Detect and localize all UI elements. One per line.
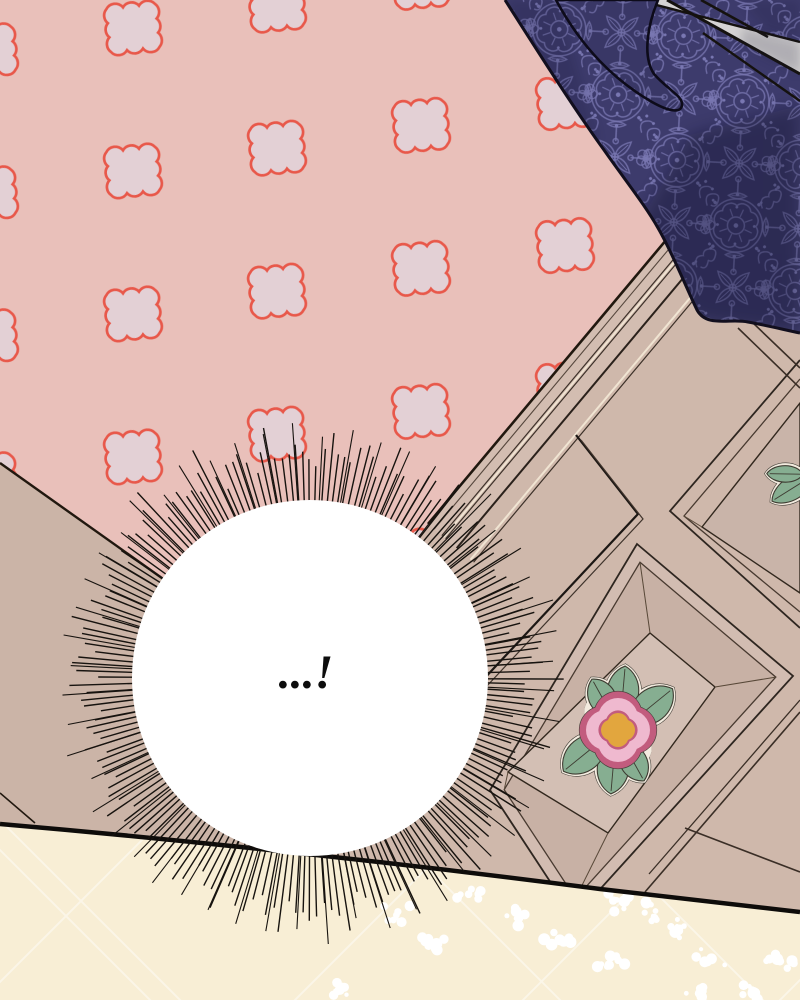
svg-text:...!: ...! <box>279 646 334 699</box>
